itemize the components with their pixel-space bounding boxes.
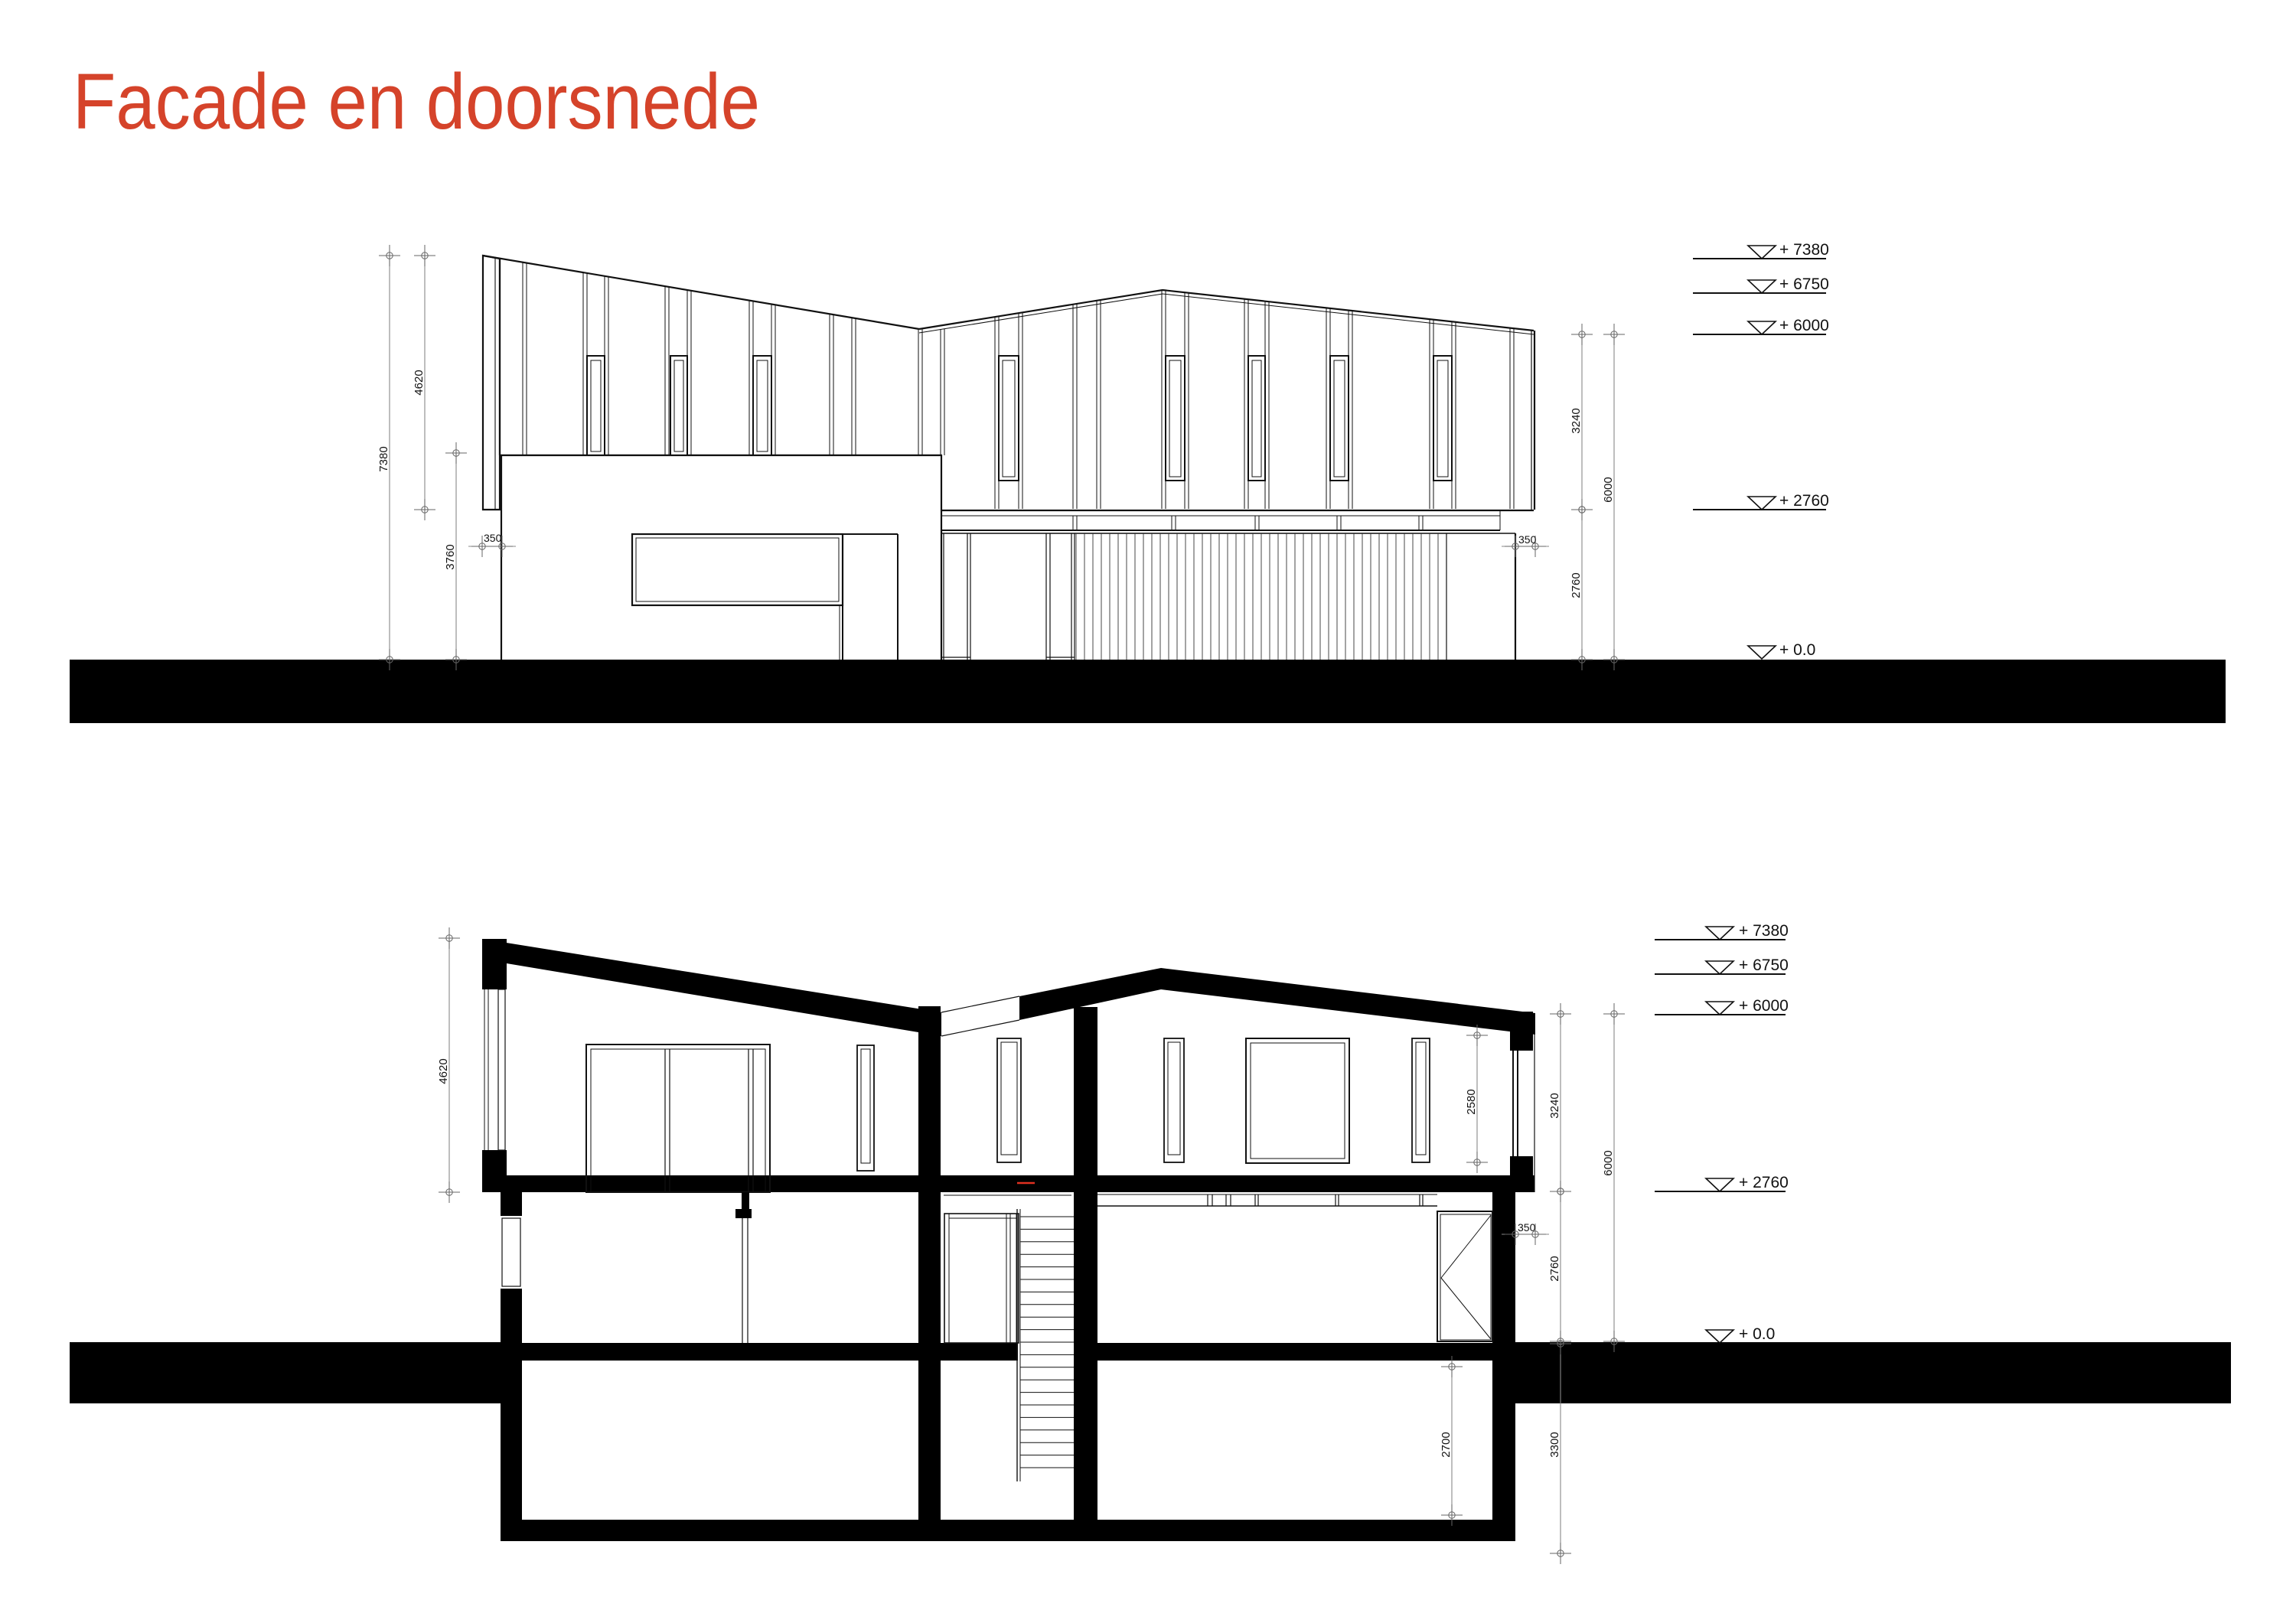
svg-text:4620: 4620 [413,370,426,395]
svg-text:2580: 2580 [1465,1089,1478,1114]
svg-text:3240: 3240 [1570,408,1583,433]
svg-text:2760: 2760 [1548,1256,1561,1281]
svg-text:+ 6000: + 6000 [1739,997,1789,1015]
svg-text:350: 350 [484,532,502,544]
svg-text:3300: 3300 [1548,1432,1561,1457]
svg-text:350: 350 [1518,533,1537,546]
svg-text:2760: 2760 [1570,572,1583,598]
svg-text:350: 350 [1518,1221,1536,1234]
svg-text:+ 6750: + 6750 [1739,957,1789,974]
svg-text:7380: 7380 [377,446,390,471]
svg-text:+ 7380: + 7380 [1779,241,1829,259]
svg-text:+ 6000: + 6000 [1779,317,1829,334]
svg-text:3760: 3760 [444,544,457,569]
svg-text:Facade en doorsnede: Facade en doorsnede [73,57,760,145]
svg-text:4620: 4620 [437,1058,450,1084]
svg-text:6000: 6000 [1602,477,1615,502]
svg-text:+ 6750: + 6750 [1779,275,1829,293]
svg-text:6000: 6000 [1602,1150,1615,1175]
svg-text:2700: 2700 [1440,1432,1453,1457]
svg-text:+ 2760: + 2760 [1739,1174,1789,1191]
svg-text:+ 7380: + 7380 [1739,922,1789,940]
svg-text:+ 2760: + 2760 [1779,492,1829,510]
svg-text:3240: 3240 [1548,1093,1561,1118]
svg-text:+ 0.0: + 0.0 [1779,641,1815,659]
svg-text:+ 0.0: + 0.0 [1739,1325,1775,1343]
